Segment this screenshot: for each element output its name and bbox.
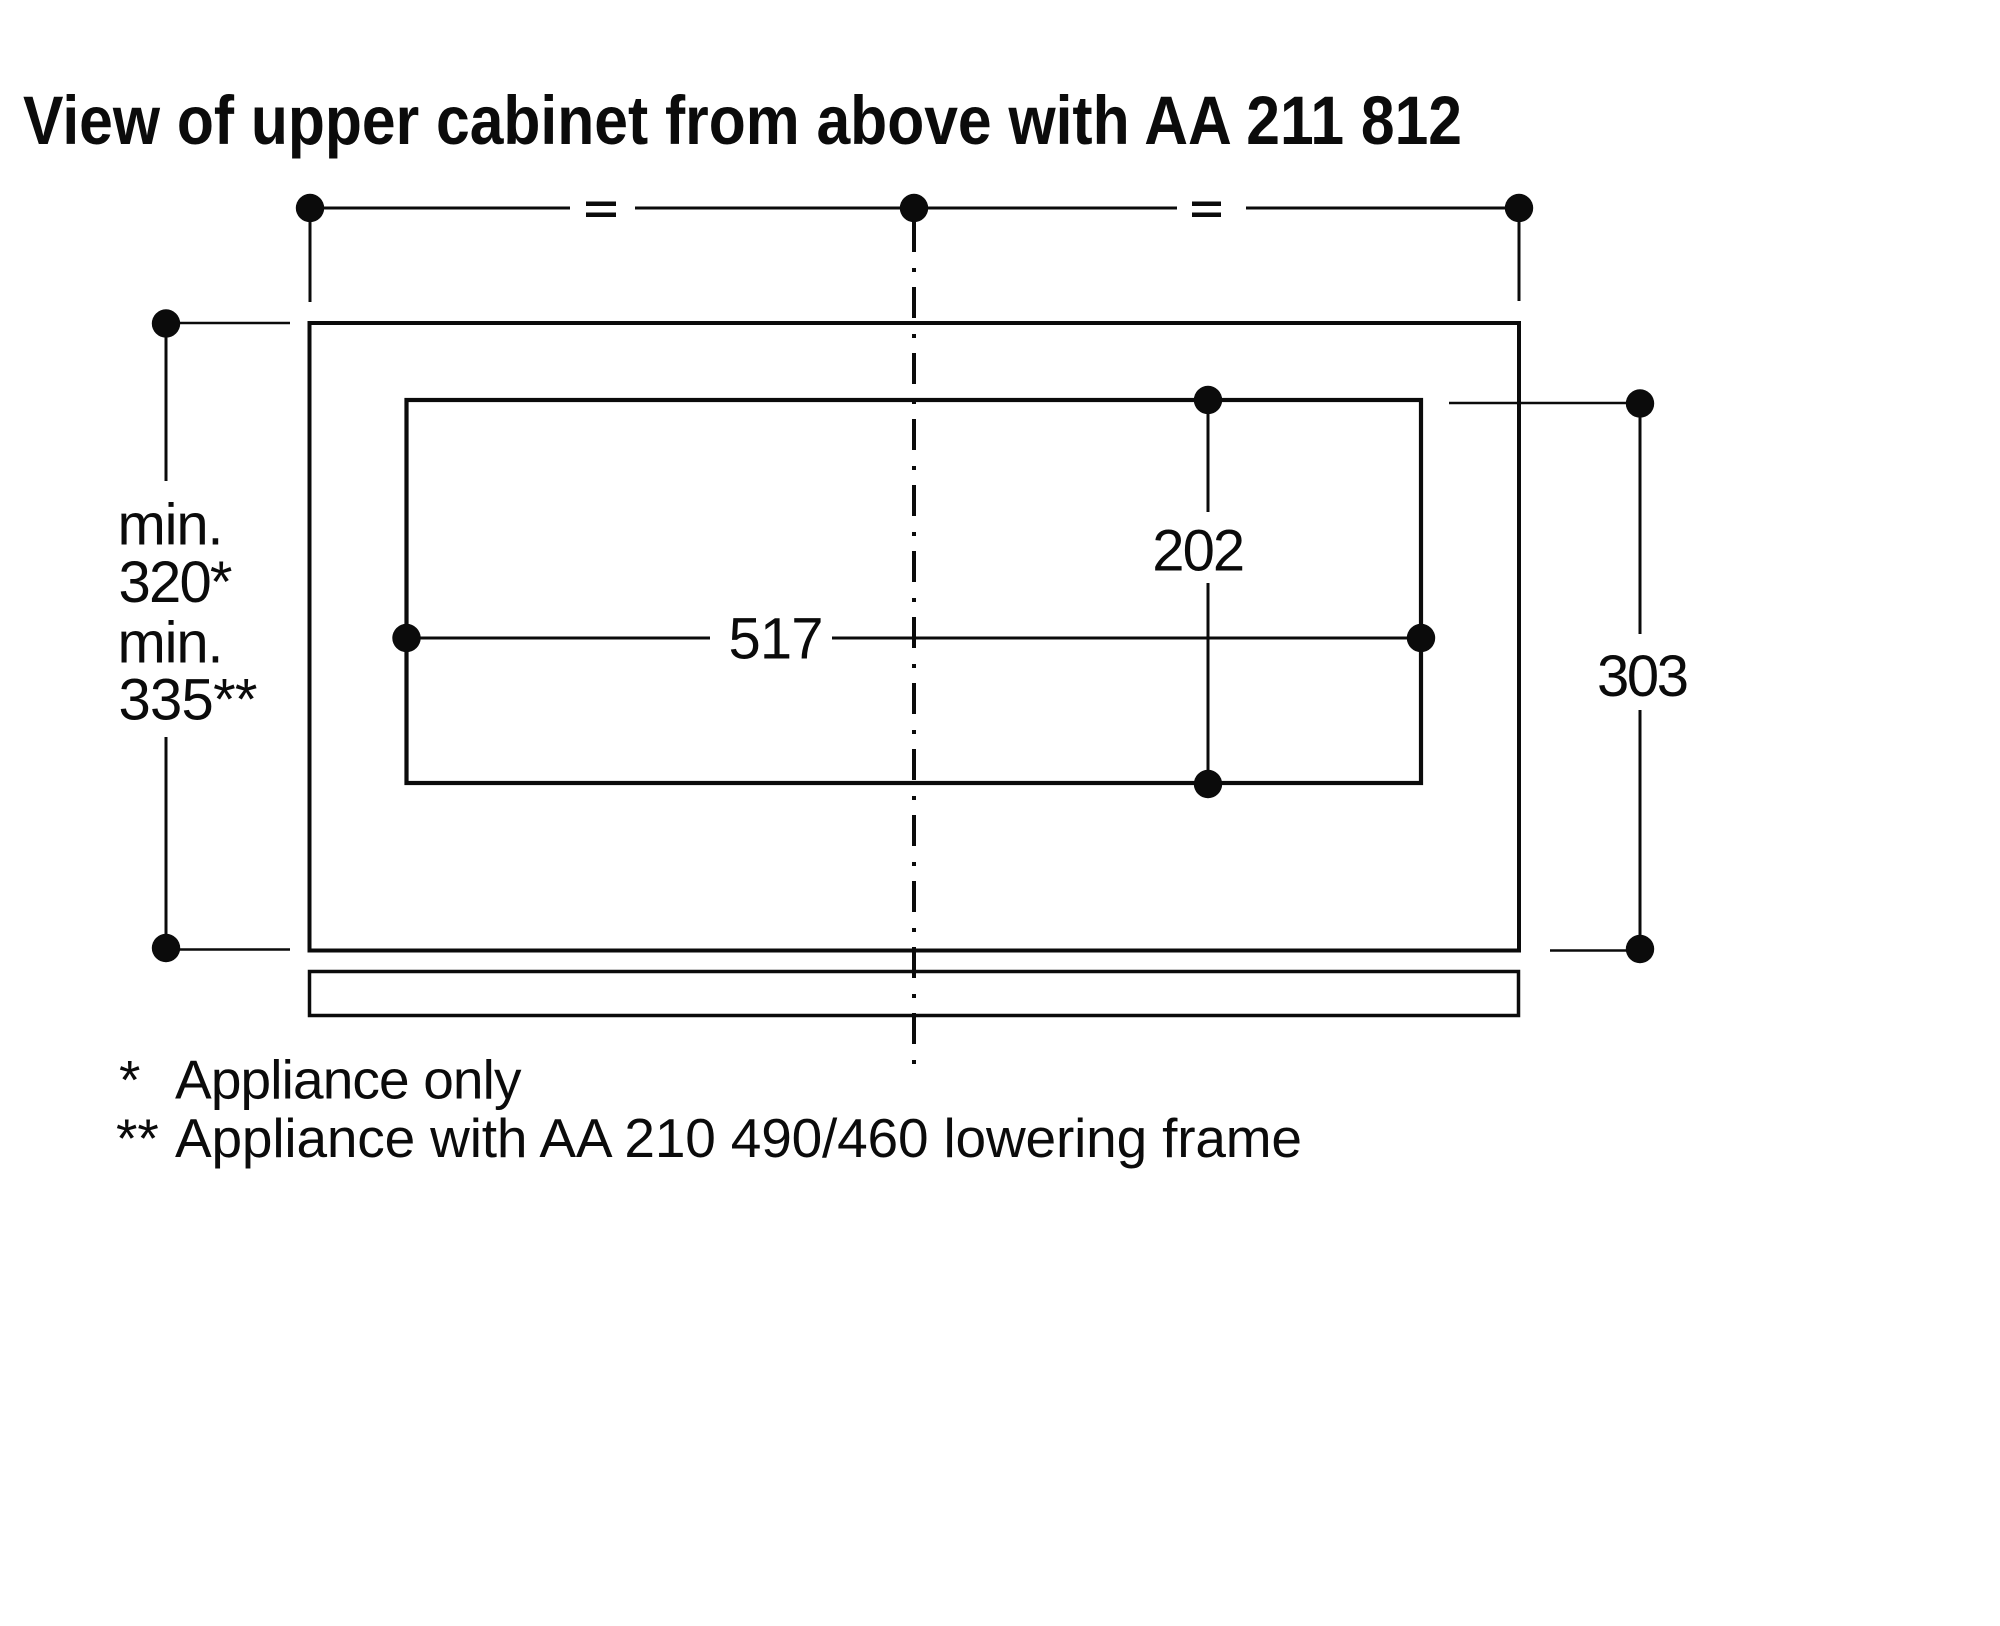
svg-text:320*: 320* xyxy=(119,550,233,615)
svg-text:min.: min. xyxy=(118,611,224,676)
svg-text:Appliance with AA 210 490/460: Appliance with AA 210 490/460 lowering f… xyxy=(175,1107,1302,1169)
svg-text:335**: 335** xyxy=(119,667,258,732)
svg-text:Appliance only: Appliance only xyxy=(175,1049,522,1111)
svg-text:View of upper cabinet from abo: View of upper cabinet from above with AA… xyxy=(23,82,1462,159)
svg-text:517: 517 xyxy=(729,607,824,672)
svg-text:*: * xyxy=(119,1049,140,1111)
svg-text:303: 303 xyxy=(1597,644,1689,709)
svg-text:202: 202 xyxy=(1152,518,1245,583)
svg-text:**: ** xyxy=(116,1107,159,1169)
svg-text:min.: min. xyxy=(118,493,224,558)
